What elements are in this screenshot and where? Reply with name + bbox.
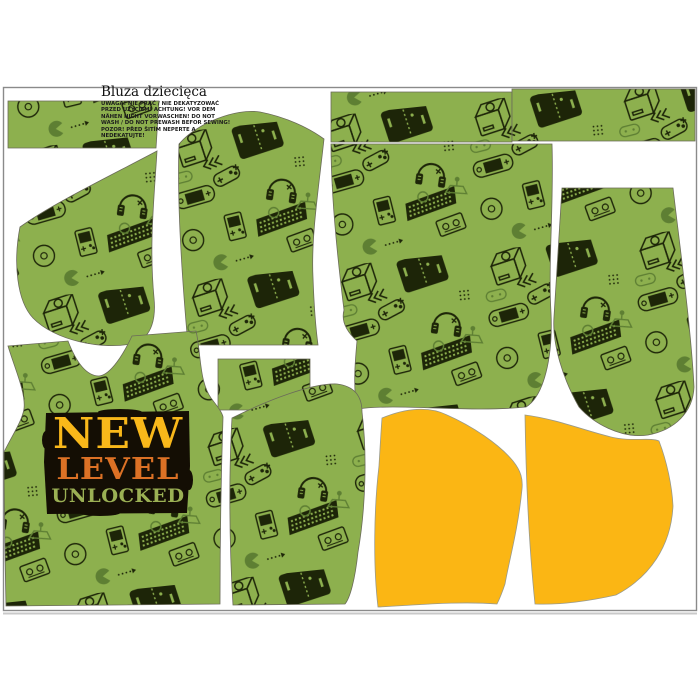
pattern-piece-side-panel <box>554 188 694 436</box>
logo-word-new: NEW <box>41 413 194 454</box>
care-warning-text: UWAGA! NIE PRAĆ / NIE DEKATYZOWAĆ PRZED … <box>101 101 204 139</box>
hood-pieces <box>375 409 673 607</box>
pattern-piece-hood-left-yellow <box>375 409 523 607</box>
care-warning-line: WASH / DO NOT PREWASH BEFOR SEWING! <box>101 120 204 126</box>
pattern-piece-bottom-sleeve <box>230 384 365 605</box>
pattern-piece-hem-band-left <box>331 92 512 142</box>
product-image: Bluza dziecięca UWAGA! NIE PRAĆ / NIE DE… <box>0 0 700 700</box>
care-warning-line: PRZED UŻYCIEM! ACHTUNG! VOR DEM <box>101 107 204 113</box>
panel-title: Bluza dziecięca <box>101 85 221 99</box>
care-warning-line: NEDEKATUJTE! <box>101 133 204 139</box>
new-level-unlocked-graphic: NEW LEVEL UNLOCKED <box>47 413 189 513</box>
pattern-piece-back-bodice <box>331 144 552 409</box>
logo-word-level: LEVEL <box>43 454 194 485</box>
pattern-piece-sleeve-left <box>17 151 157 346</box>
pattern-piece-sleeve-right <box>179 111 324 345</box>
logo-word-unlocked: UNLOCKED <box>46 485 191 508</box>
pattern-piece-hood-right-yellow <box>525 415 673 604</box>
pattern-piece-hem-band-right <box>512 89 695 141</box>
